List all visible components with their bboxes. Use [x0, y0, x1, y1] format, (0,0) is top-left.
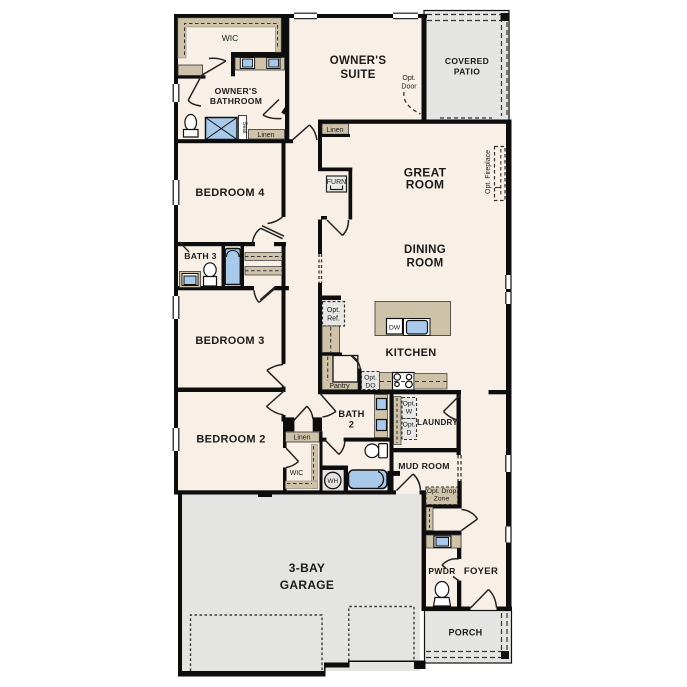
svg-text:FURN: FURN: [327, 179, 346, 186]
svg-text:FOYER: FOYER: [464, 566, 498, 577]
svg-text:3-BAY: 3-BAY: [289, 561, 325, 575]
svg-text:2: 2: [349, 420, 354, 430]
svg-text:Door: Door: [401, 84, 417, 91]
svg-text:Opt. Fireplace: Opt. Fireplace: [485, 150, 492, 194]
svg-text:COVERED: COVERED: [445, 56, 489, 66]
svg-text:KITCHEN: KITCHEN: [386, 347, 437, 359]
svg-text:DO: DO: [365, 383, 375, 390]
svg-text:Linen: Linen: [293, 435, 310, 442]
svg-text:Opt.: Opt.: [403, 422, 416, 429]
svg-text:BEDROOM 2: BEDROOM 2: [196, 434, 265, 446]
svg-text:SUITE: SUITE: [340, 69, 375, 81]
svg-text:ROOM: ROOM: [406, 178, 445, 192]
svg-text:Zone: Zone: [434, 495, 450, 502]
svg-text:WH: WH: [328, 478, 339, 485]
svg-text:BEDROOM 3: BEDROOM 3: [195, 335, 264, 347]
svg-text:BATH: BATH: [338, 409, 364, 419]
svg-text:BATHROOM: BATHROOM: [210, 96, 262, 106]
svg-text:DINING: DINING: [404, 244, 446, 256]
svg-text:Seat: Seat: [241, 121, 247, 134]
svg-text:WIC: WIC: [222, 33, 239, 43]
svg-text:Opt.: Opt.: [327, 307, 340, 314]
svg-text:Opt.: Opt.: [403, 401, 416, 408]
svg-text:D: D: [407, 430, 412, 437]
svg-text:W: W: [406, 409, 413, 416]
svg-text:BATH 3: BATH 3: [184, 251, 217, 261]
svg-text:OWNER'S: OWNER'S: [215, 86, 258, 96]
svg-text:ROOM: ROOM: [407, 258, 444, 270]
svg-text:Linen: Linen: [326, 127, 343, 134]
svg-text:PATIO: PATIO: [454, 67, 480, 77]
svg-text:MUD ROOM: MUD ROOM: [398, 461, 450, 471]
svg-text:Pantry: Pantry: [329, 383, 350, 390]
svg-text:LAUNDRY: LAUNDRY: [417, 418, 458, 427]
svg-text:Linen: Linen: [257, 132, 274, 139]
svg-text:PWDR: PWDR: [428, 566, 455, 576]
svg-text:PORCH: PORCH: [448, 628, 482, 638]
svg-text:Opt.: Opt.: [402, 75, 415, 82]
svg-text:BEDROOM 4: BEDROOM 4: [195, 187, 265, 199]
svg-text:Opt.: Opt.: [364, 375, 377, 382]
svg-text:DW: DW: [389, 325, 401, 332]
svg-text:OWNER'S: OWNER'S: [330, 55, 387, 67]
svg-text:WIC: WIC: [290, 470, 304, 477]
svg-text:Ref.: Ref.: [327, 316, 340, 323]
svg-text:Opt. Drop: Opt. Drop: [427, 488, 457, 495]
svg-text:GARAGE: GARAGE: [280, 578, 334, 592]
